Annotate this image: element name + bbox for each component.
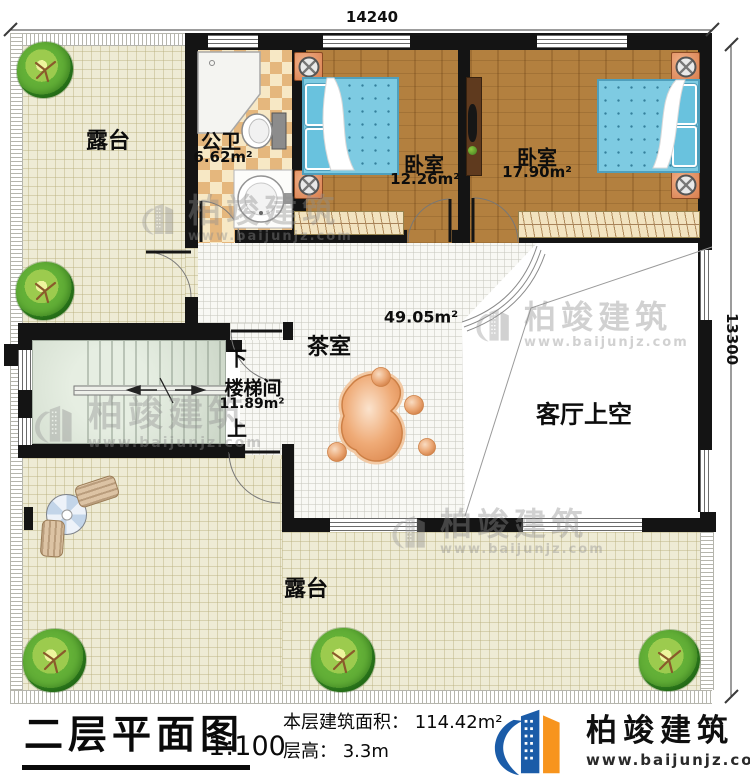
door-bedroom-left	[408, 199, 450, 242]
label-tea-room-area: 49.05m²	[384, 308, 458, 327]
tree-branches	[36, 62, 680, 672]
pouf	[419, 439, 436, 456]
label-bedroom-left-area: 12.26m²	[390, 170, 460, 188]
brand-name: 柏竣建筑	[586, 716, 750, 747]
door-bedroom-right	[473, 198, 518, 242]
bed-left-sheet	[323, 78, 354, 170]
label-terrace-top: 露台	[86, 123, 130, 155]
stair-direction-arrows	[128, 378, 204, 403]
floor-area-text: 本层建筑面积： 114.42m²	[283, 714, 502, 732]
label-stair-down: 下	[227, 343, 247, 372]
dim-height: 13300	[723, 313, 741, 365]
brand-url: www.baijunjz.com	[586, 753, 750, 768]
bed-right-sheet	[653, 80, 685, 168]
sink-icon	[234, 170, 292, 228]
label-living-void: 客厅上空	[536, 395, 632, 430]
label-stair-up: 上	[227, 413, 247, 442]
toilet-icon	[242, 113, 286, 149]
label-bathroom-area: 6.62m²	[193, 148, 252, 166]
dim-width: 14240	[336, 8, 408, 26]
label-bedroom-right-area: 17.90m²	[502, 163, 572, 181]
brand-logo-icon	[486, 706, 578, 778]
pouf	[372, 368, 391, 387]
pouf	[328, 443, 347, 462]
brand-block: 柏竣建筑 www.baijunjz.com	[486, 706, 750, 778]
floor-plan-page: 柏竣建筑 www.baijunjz.com 柏竣建筑 www.baijunjz.…	[0, 0, 750, 784]
void-boundary-lines	[465, 247, 712, 516]
dimension-line-right	[725, 38, 738, 703]
floor-height-text: 层高： 3.3m	[283, 743, 389, 761]
label-stairwell-area: 11.89m²	[219, 396, 284, 412]
pouf	[405, 396, 424, 415]
tea-table	[328, 368, 436, 462]
door-terrace	[146, 252, 191, 297]
plan-linework	[0, 0, 750, 710]
plan-scale: 1:100	[208, 733, 286, 760]
label-terrace-bottom: 露台	[284, 571, 328, 603]
label-tea-room: 茶室	[307, 329, 351, 361]
balcony-railing-curve	[462, 246, 545, 331]
door-hall-terrace	[229, 452, 280, 503]
